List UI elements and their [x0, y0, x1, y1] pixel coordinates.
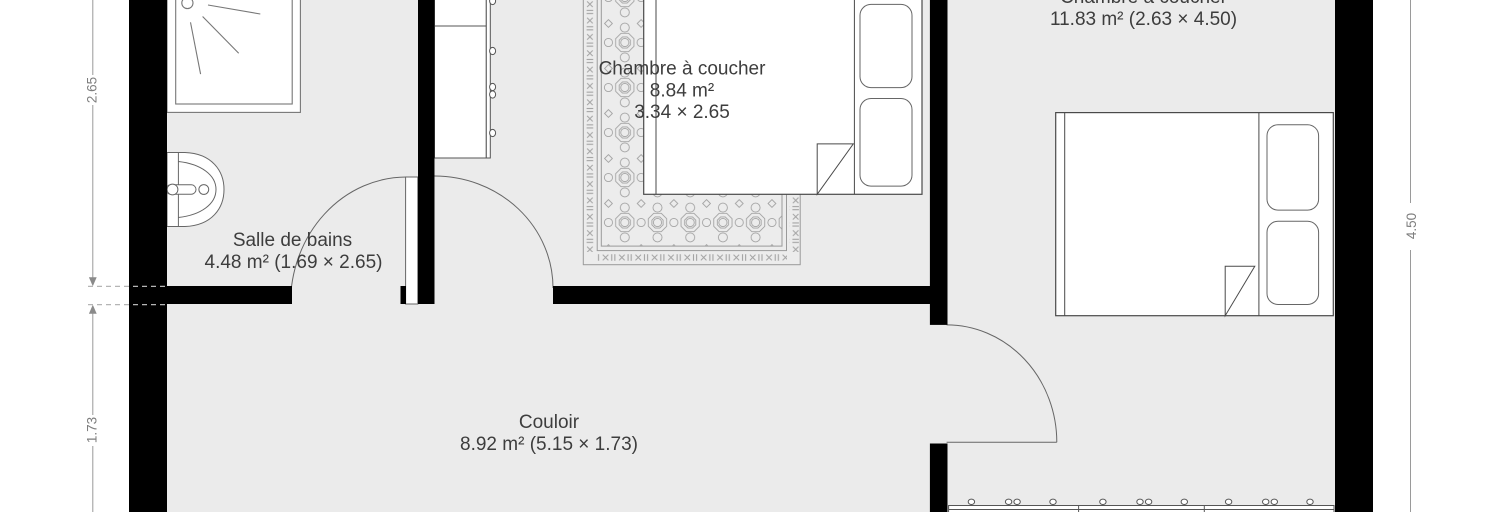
svg-text:1.73: 1.73 — [84, 417, 99, 443]
svg-text:4.50: 4.50 — [1404, 213, 1419, 239]
svg-text:2.65: 2.65 — [84, 77, 99, 103]
svg-text:11.83 m² (2.63 × 4.50): 11.83 m² (2.63 × 4.50) — [1050, 9, 1237, 30]
svg-text:8.92 m² (5.15 × 1.73): 8.92 m² (5.15 × 1.73) — [460, 434, 638, 455]
svg-text:3.34 × 2.65: 3.34 × 2.65 — [634, 102, 730, 123]
svg-text:Chambre à coucher: Chambre à coucher — [1060, 0, 1228, 8]
svg-text:4.48 m² (1.69 × 2.65): 4.48 m² (1.69 × 2.65) — [205, 252, 383, 273]
svg-text:Couloir: Couloir — [519, 412, 580, 433]
svg-text:Chambre à coucher: Chambre à coucher — [599, 59, 767, 80]
svg-text:8.84 m²: 8.84 m² — [650, 81, 714, 102]
svg-text:Salle de bains: Salle de bains — [233, 230, 352, 251]
